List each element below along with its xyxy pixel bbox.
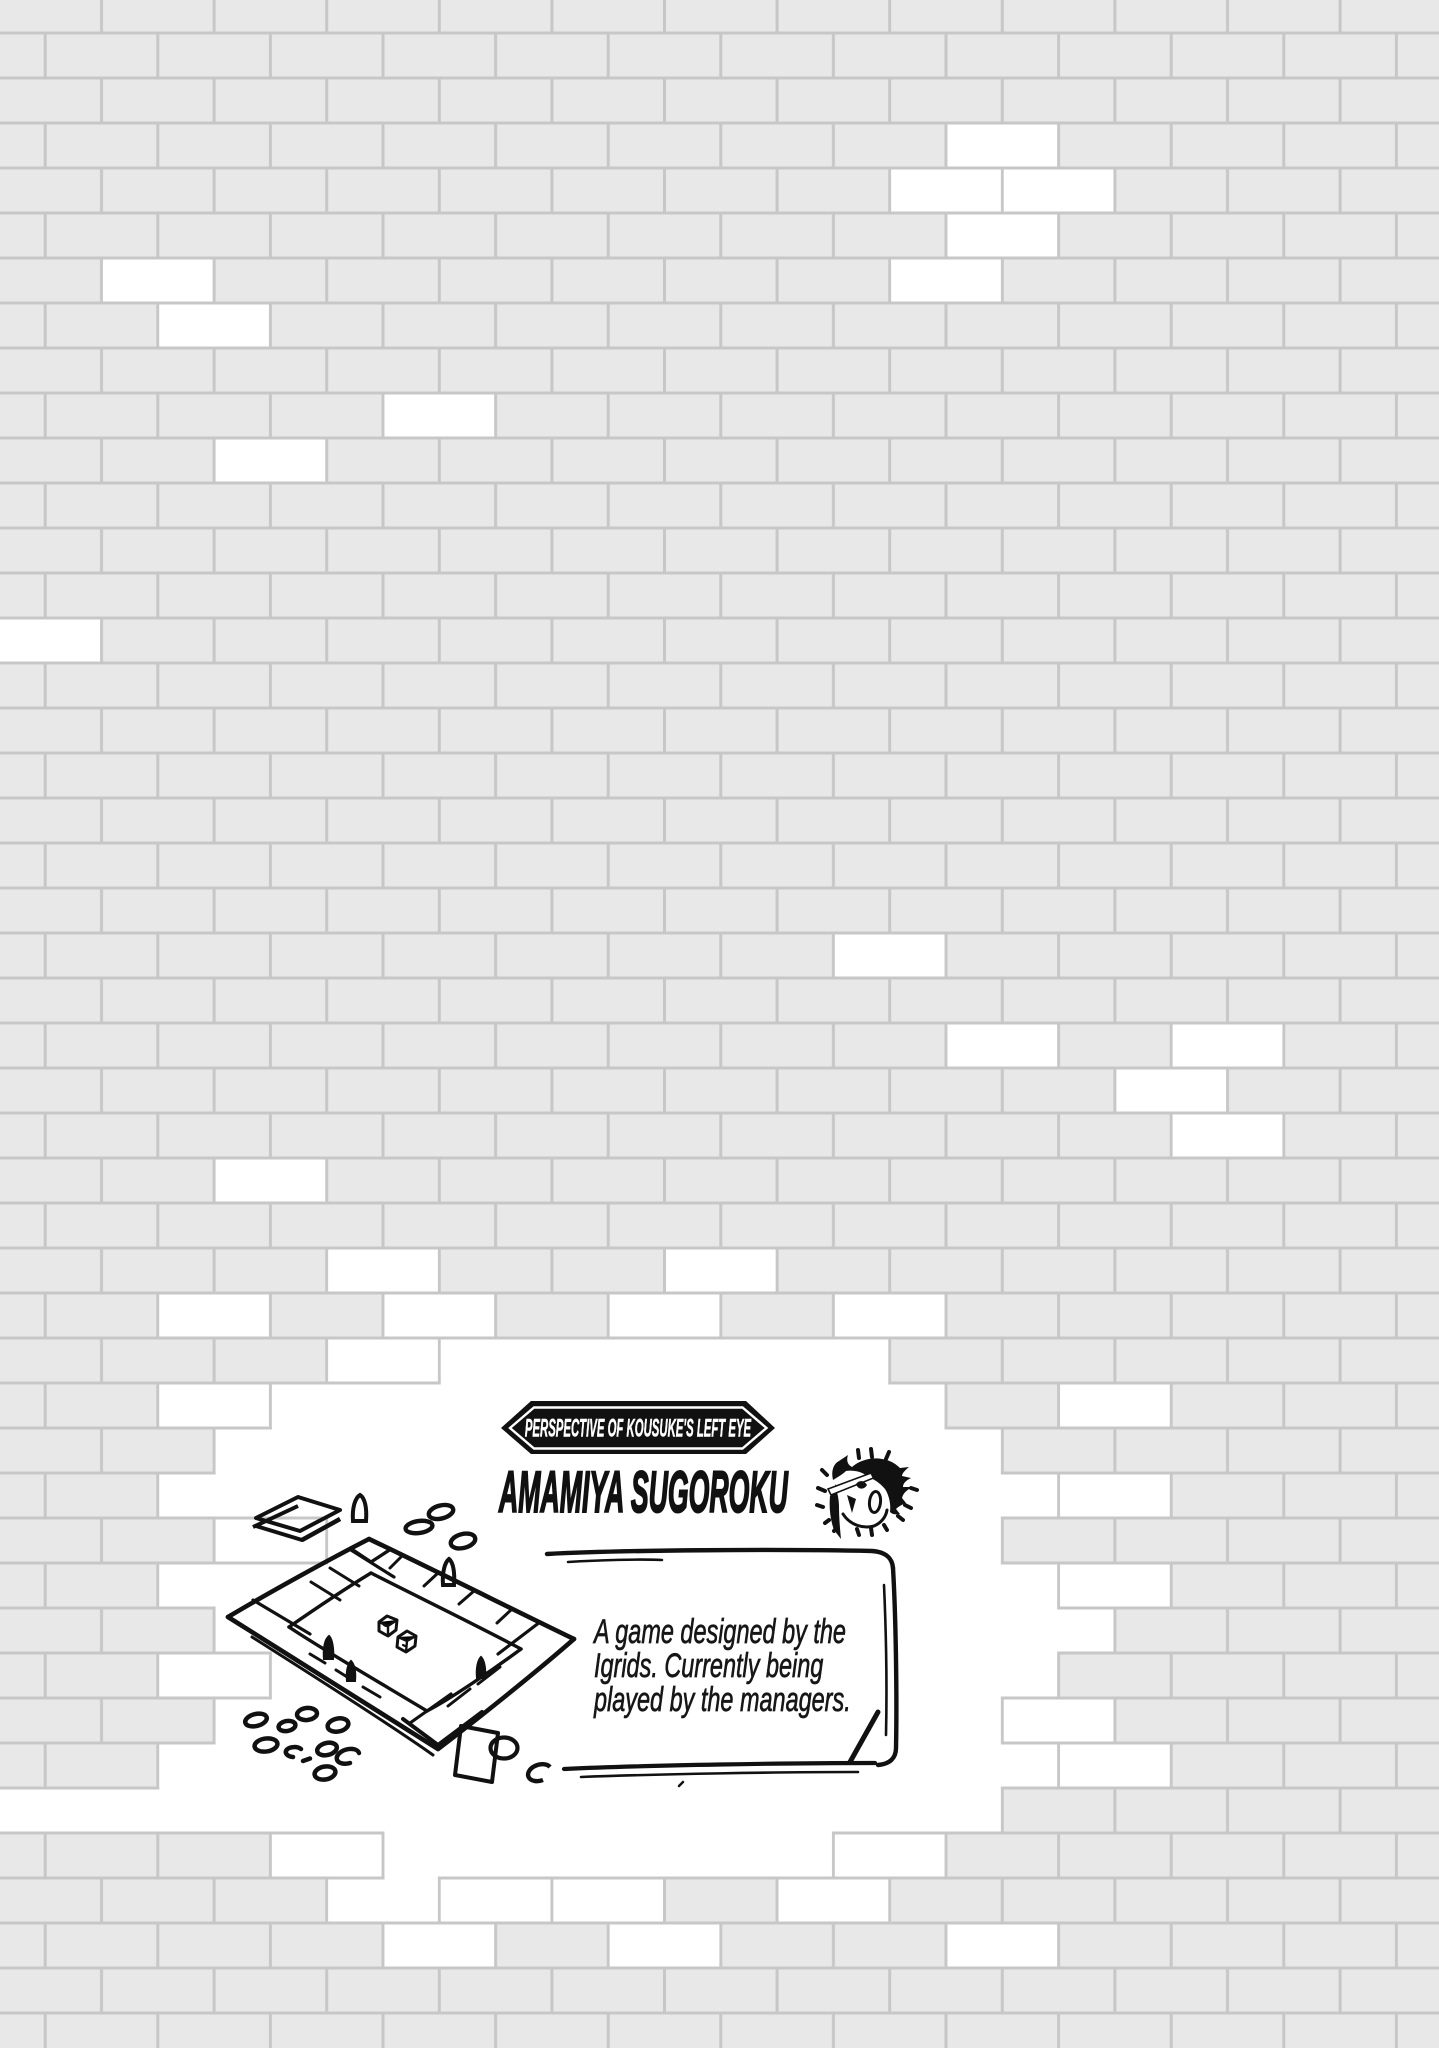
svg-text:played by the managers.: played by the managers. <box>593 1682 851 1719</box>
svg-text:Igrids. Currently being: Igrids. Currently being <box>594 1648 823 1685</box>
svg-text:A game designed by the: A game designed by the <box>592 1614 846 1651</box>
svg-text:AMAMIYA SUGOROKU: AMAMIYA SUGOROKU <box>498 1459 788 1525</box>
svg-text:PERSPECTIVE OF KOUSUKE'S LEFT: PERSPECTIVE OF KOUSUKE'S LEFT EYE <box>525 1415 752 1443</box>
